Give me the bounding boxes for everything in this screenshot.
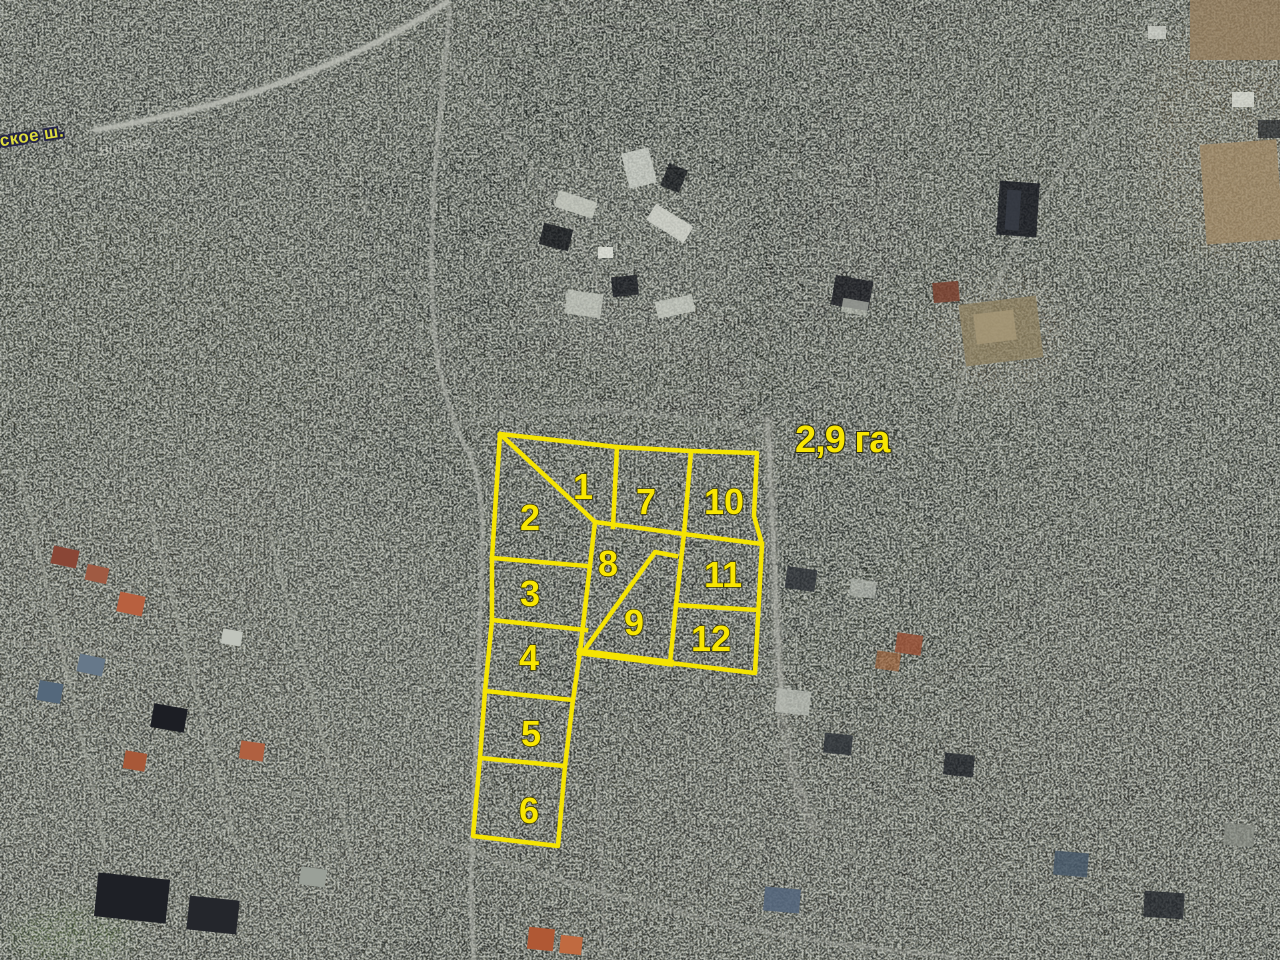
plot-number-1: 1 [573, 466, 593, 507]
plot-number-11: 11 [704, 554, 742, 595]
roof [932, 281, 960, 303]
roof [943, 752, 975, 777]
roof [36, 680, 63, 704]
satellite-map: 1 2 3 4 5 6 7 8 9 10 11 12 2,9 га нское … [0, 0, 1280, 960]
area-label: 2,9 га [795, 419, 891, 461]
roof [1223, 823, 1255, 848]
roof [565, 290, 604, 319]
roof [823, 733, 853, 756]
roof [785, 566, 818, 592]
roof [598, 247, 613, 258]
roof [775, 688, 811, 715]
roof [849, 578, 877, 598]
roof [1200, 139, 1280, 244]
roof [875, 650, 901, 671]
roof [239, 740, 265, 761]
forest-texture [0, 0, 1280, 960]
roof [527, 927, 555, 952]
plot-number-7: 7 [636, 481, 656, 522]
roof [1232, 92, 1254, 107]
roof [1143, 891, 1185, 920]
plot-number-12: 12 [691, 618, 731, 659]
roof [1053, 851, 1089, 878]
roof [895, 632, 924, 655]
roof [973, 310, 1016, 345]
roof [559, 935, 583, 955]
roof [299, 866, 327, 887]
plot-number-8: 8 [598, 543, 618, 584]
plot-number-3: 3 [520, 573, 540, 614]
plot-number-10: 10 [704, 481, 744, 522]
roof [94, 872, 170, 923]
roof [1005, 190, 1022, 231]
plot-number-2: 2 [520, 497, 540, 538]
plot-number-6: 6 [519, 790, 539, 831]
roof [1258, 120, 1280, 138]
plot-number-5: 5 [521, 713, 541, 754]
roof [186, 895, 239, 934]
plot-number-4: 4 [519, 637, 539, 678]
roof [1148, 26, 1166, 39]
roof [611, 275, 639, 298]
plot-number-9: 9 [624, 602, 644, 643]
roof [763, 886, 801, 913]
roof [1190, 0, 1280, 60]
roof [123, 750, 148, 772]
